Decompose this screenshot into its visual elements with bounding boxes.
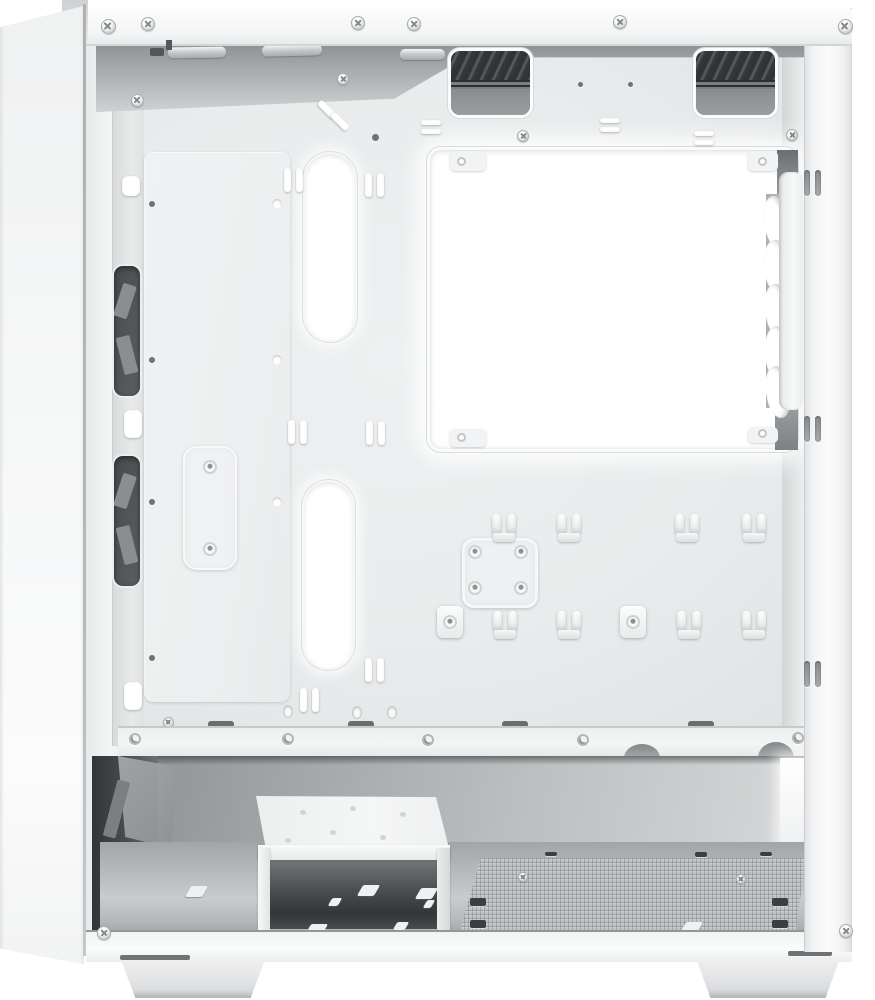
- front-panel: [0, 4, 84, 970]
- rear-rail-slot: [804, 416, 810, 442]
- drive-cage-interior: [270, 858, 438, 932]
- front-fan-opening: [114, 456, 140, 586]
- philips-screw-icon: [97, 926, 111, 940]
- front-io-cable: [168, 46, 226, 58]
- front-rail-slot: [122, 176, 140, 196]
- rear-exhaust-fan: [779, 172, 803, 410]
- top-frame-rail: [86, 8, 852, 46]
- drive-cage-top: [250, 796, 450, 852]
- drive-cage-front-right: [437, 848, 450, 934]
- tray-hole: [272, 355, 282, 365]
- front-fan-opening: [114, 266, 140, 396]
- floor-slot: [545, 852, 557, 856]
- tray-hole: [272, 497, 282, 507]
- floor-slot: [772, 920, 788, 928]
- drive-cage-front-top: [258, 845, 450, 860]
- tie-slot: [366, 421, 373, 445]
- thumbscrew-keyhole: [129, 733, 141, 745]
- psu-dust-filter-mesh: [460, 858, 806, 930]
- rear-rail-slot: [804, 661, 810, 687]
- tie-slot: [600, 127, 620, 132]
- philips-screw-icon: [517, 130, 529, 142]
- tab-screw-hole: [758, 429, 767, 438]
- cable-tie-hook: [675, 514, 699, 542]
- cage-vent-hole: [400, 812, 406, 817]
- thumbscrew-keyhole: [577, 734, 589, 746]
- tie-slot: [296, 168, 303, 192]
- case-foot: [113, 960, 273, 998]
- thumbscrew-keyhole: [792, 732, 804, 744]
- rear-rail-slot: [804, 170, 810, 196]
- hook-hole: [443, 615, 457, 629]
- tab-screw-hole: [457, 157, 466, 166]
- philips-screw-icon: [839, 924, 853, 938]
- front-io-cable: [262, 44, 322, 57]
- tray-hole: [628, 82, 633, 87]
- frame-notch: [166, 40, 172, 50]
- tie-slot: [300, 688, 307, 712]
- screw-hole: [514, 581, 528, 595]
- cutout-corner-tab: [450, 429, 486, 447]
- top-vent-cutout: [693, 48, 778, 118]
- philips-screw-icon: [518, 872, 528, 882]
- rear-rail-slot: [815, 170, 821, 196]
- top-vent-grille-icon: [696, 51, 775, 80]
- tie-slot: [694, 131, 714, 136]
- philips-screw-icon: [337, 73, 349, 85]
- rear-rail-slot: [815, 661, 821, 687]
- tie-slot: [694, 140, 714, 145]
- floor-slot: [772, 898, 788, 906]
- front-io-cable: [400, 49, 445, 60]
- thumbscrew-keyhole: [282, 733, 294, 745]
- cable-tie-hook: [493, 611, 517, 639]
- compartment-shadow: [92, 756, 806, 765]
- philips-screw-icon: [141, 17, 155, 31]
- cable-routing-slot: [302, 480, 355, 670]
- top-vent-grille-icon: [451, 51, 530, 80]
- cable-connector: [150, 48, 164, 56]
- top-vent-inner-wall: [696, 89, 775, 115]
- floor-slot: [470, 920, 486, 928]
- cage-vent-hole: [285, 838, 291, 843]
- top-vent-slats: [451, 80, 530, 89]
- tie-slot: [312, 688, 319, 712]
- drive-cage-front-left: [258, 848, 270, 934]
- floor-slot: [695, 852, 707, 857]
- top-vent-slats: [696, 80, 775, 89]
- philips-screw-icon: [351, 16, 365, 30]
- rear-frame-rail: [804, 8, 852, 952]
- top-vent-inner-wall: [451, 89, 530, 115]
- hook-hole: [626, 615, 640, 629]
- cable-tie-hook: [557, 514, 581, 542]
- cable-tie-hook: [742, 514, 766, 542]
- floor-slot: [760, 852, 772, 856]
- front-panel-seam: [83, 4, 86, 956]
- tie-slot: [284, 168, 291, 192]
- screw-hole: [468, 581, 482, 595]
- philips-screw-icon: [101, 19, 116, 34]
- tie-slot: [365, 173, 372, 197]
- tie-slot: [421, 129, 441, 134]
- cable-tie-hook: [742, 611, 766, 639]
- front-fan-channel: [112, 46, 146, 746]
- tray-hole: [372, 134, 379, 141]
- tie-slot: [600, 118, 620, 123]
- front-rail-slot: [124, 682, 142, 710]
- pc-case-interior-photo: [0, 0, 875, 1000]
- tray-hole: [149, 357, 155, 363]
- cage-vent-hole: [330, 830, 336, 835]
- cpu-cooler-cutout: [427, 147, 798, 452]
- thumbscrew-keyhole: [422, 734, 434, 746]
- philips-screw-icon: [786, 129, 798, 141]
- cage-vent-hole: [350, 806, 356, 811]
- philips-screw-icon: [407, 17, 421, 31]
- screw-hole: [514, 545, 528, 559]
- tray-bottom-rail: [118, 726, 806, 758]
- tie-slot: [377, 173, 384, 197]
- tray-hole: [272, 199, 282, 209]
- cage-vent-hole: [300, 810, 306, 815]
- tray-hole: [578, 82, 583, 87]
- tray-raised-plate: [144, 152, 290, 702]
- philips-screw-icon: [131, 94, 144, 107]
- philips-screw-icon: [736, 874, 746, 884]
- tab-screw-hole: [758, 157, 767, 166]
- tray-hole: [149, 655, 155, 661]
- bottom-frame-rail: [86, 930, 852, 962]
- cable-tie-hook: [492, 514, 516, 542]
- tie-slot: [365, 658, 372, 682]
- oval-hole: [387, 706, 397, 719]
- philips-screw-icon: [838, 19, 853, 34]
- top-vent-cutout: [448, 48, 533, 118]
- floor-slot: [470, 898, 486, 906]
- tray-hole: [149, 201, 155, 207]
- foot-mount-shadow: [120, 955, 190, 960]
- cable-tie-hook: [557, 611, 581, 639]
- screw-hole: [468, 545, 482, 559]
- oval-hole: [283, 705, 293, 718]
- screw-hole: [203, 542, 217, 556]
- cutout-corner-tab: [450, 151, 486, 171]
- tray-hole: [149, 499, 155, 505]
- front-bracket: [118, 756, 178, 848]
- tie-slot: [421, 120, 441, 125]
- oval-hole: [352, 706, 362, 719]
- tab-screw-hole: [457, 433, 466, 442]
- cage-vent-hole: [380, 835, 386, 840]
- tie-slot: [378, 421, 385, 445]
- front-rail-slot: [124, 410, 142, 438]
- screw-hole: [203, 460, 217, 474]
- rear-rail-slot: [815, 416, 821, 442]
- tie-slot: [288, 420, 295, 444]
- case-foot: [688, 958, 848, 998]
- cable-routing-slot: [303, 152, 357, 342]
- cable-tie-hook: [677, 611, 701, 639]
- philips-screw-icon: [613, 15, 627, 29]
- tie-slot: [300, 420, 307, 444]
- tie-slot: [377, 658, 384, 682]
